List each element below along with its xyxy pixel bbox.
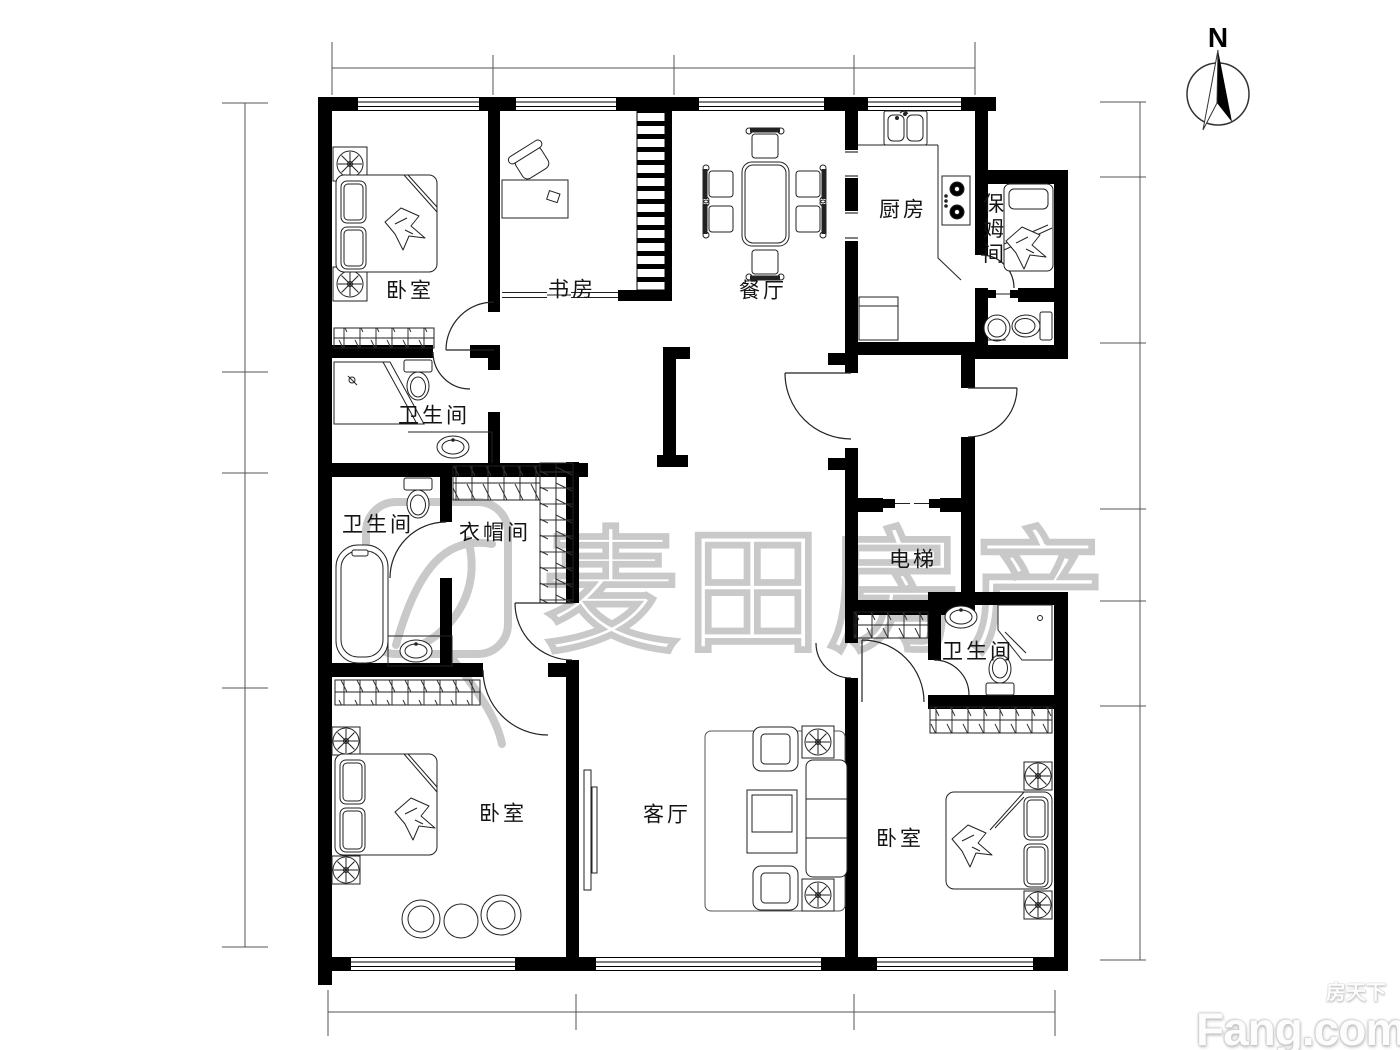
- dining-chair-icon: [703, 165, 733, 203]
- washbasin-icon: [945, 606, 977, 628]
- dining-chair-icon: [746, 250, 784, 280]
- bathtub-icon: [336, 545, 388, 663]
- double-bed-icon: [336, 175, 437, 272]
- pillow-icon: [341, 181, 366, 223]
- double-bed-icon: [335, 754, 437, 855]
- room-label-bedroom-bottom-left: 卧室: [479, 802, 527, 825]
- room-label-nanny-room: 保姆间: [980, 193, 1003, 268]
- kitchen-furniture: [858, 111, 970, 340]
- pillow-icon: [1009, 189, 1048, 209]
- room-label-living-room: 客厅: [643, 803, 691, 826]
- fang-logo-cn: 房天下: [1196, 976, 1386, 1005]
- toilet-icon: [404, 478, 432, 518]
- dining-chair-icon: [796, 165, 826, 203]
- coffee-table-icon: [747, 790, 797, 853]
- dining-chair-icon: [746, 128, 784, 158]
- study-furniture: [502, 110, 665, 290]
- dining-chair-icon: [796, 200, 826, 238]
- double-bed-icon: [946, 792, 1052, 889]
- room-label-bathroom-left: 卫生间: [342, 513, 414, 536]
- armchair-icon: [753, 727, 798, 771]
- fridge-icon: [859, 297, 898, 340]
- single-bed-icon: [1004, 184, 1053, 271]
- pillow-icon: [340, 808, 365, 852]
- floor-plan-canvas: 麦田房产: [0, 0, 1400, 1050]
- toilet-icon: [404, 360, 432, 400]
- stool-icon: [984, 315, 1010, 341]
- bedroom-bottom-right-furniture: [930, 707, 1052, 919]
- corridor-closet: [854, 612, 928, 638]
- room-label-bedroom-bottom-right: 卧室: [876, 827, 924, 850]
- lounge-chair-icon: [402, 900, 440, 938]
- pillow-icon: [340, 760, 365, 804]
- tv-icon: [584, 770, 597, 890]
- room-label-bathroom-right: 卫生间: [942, 640, 1014, 663]
- dining-chair-icon: [703, 200, 733, 238]
- pillow-icon: [1024, 844, 1048, 887]
- room-label-study: 书房: [548, 278, 596, 301]
- armchair-icon: [753, 866, 798, 910]
- room-label-elevator: 电梯: [889, 548, 937, 571]
- washbasin-icon: [437, 436, 469, 458]
- lounge-chair-icon: [481, 895, 521, 935]
- living-room-furniture: [584, 726, 847, 911]
- north-arrow-icon: [1187, 50, 1249, 130]
- fang-logo-en: Fang.com: [1196, 1002, 1394, 1050]
- washbasin-icon: [400, 640, 432, 662]
- toilet-icon: [1012, 312, 1052, 340]
- room-label-kitchen: 厨房: [879, 198, 927, 221]
- room-label-dining-room: 餐厅: [739, 279, 787, 302]
- floorplan-page: 麦田房产: [0, 0, 1400, 1050]
- dining-table-icon: [742, 162, 789, 246]
- dining-room-furniture: [703, 128, 826, 280]
- bookshelf-icon: [637, 110, 665, 290]
- pillow-icon: [341, 227, 366, 269]
- kitchen-sink-icon: [884, 111, 927, 145]
- room-label-bedroom-top-left: 卧室: [386, 279, 434, 302]
- fang-logo: 房天下 Fang.com: [1196, 976, 1394, 1050]
- sofa-icon: [806, 760, 847, 877]
- gas-stove-icon: [942, 176, 970, 225]
- room-label-cloakroom: 衣帽间: [459, 521, 531, 544]
- compass-north-label: N: [1208, 22, 1228, 54]
- pillow-icon: [1024, 797, 1048, 840]
- office-chair-icon: [507, 139, 555, 184]
- room-label-bathroom-top: 卫生间: [398, 404, 470, 427]
- round-table-icon: [444, 904, 478, 938]
- bedroom-top-left-furniture: [333, 147, 437, 348]
